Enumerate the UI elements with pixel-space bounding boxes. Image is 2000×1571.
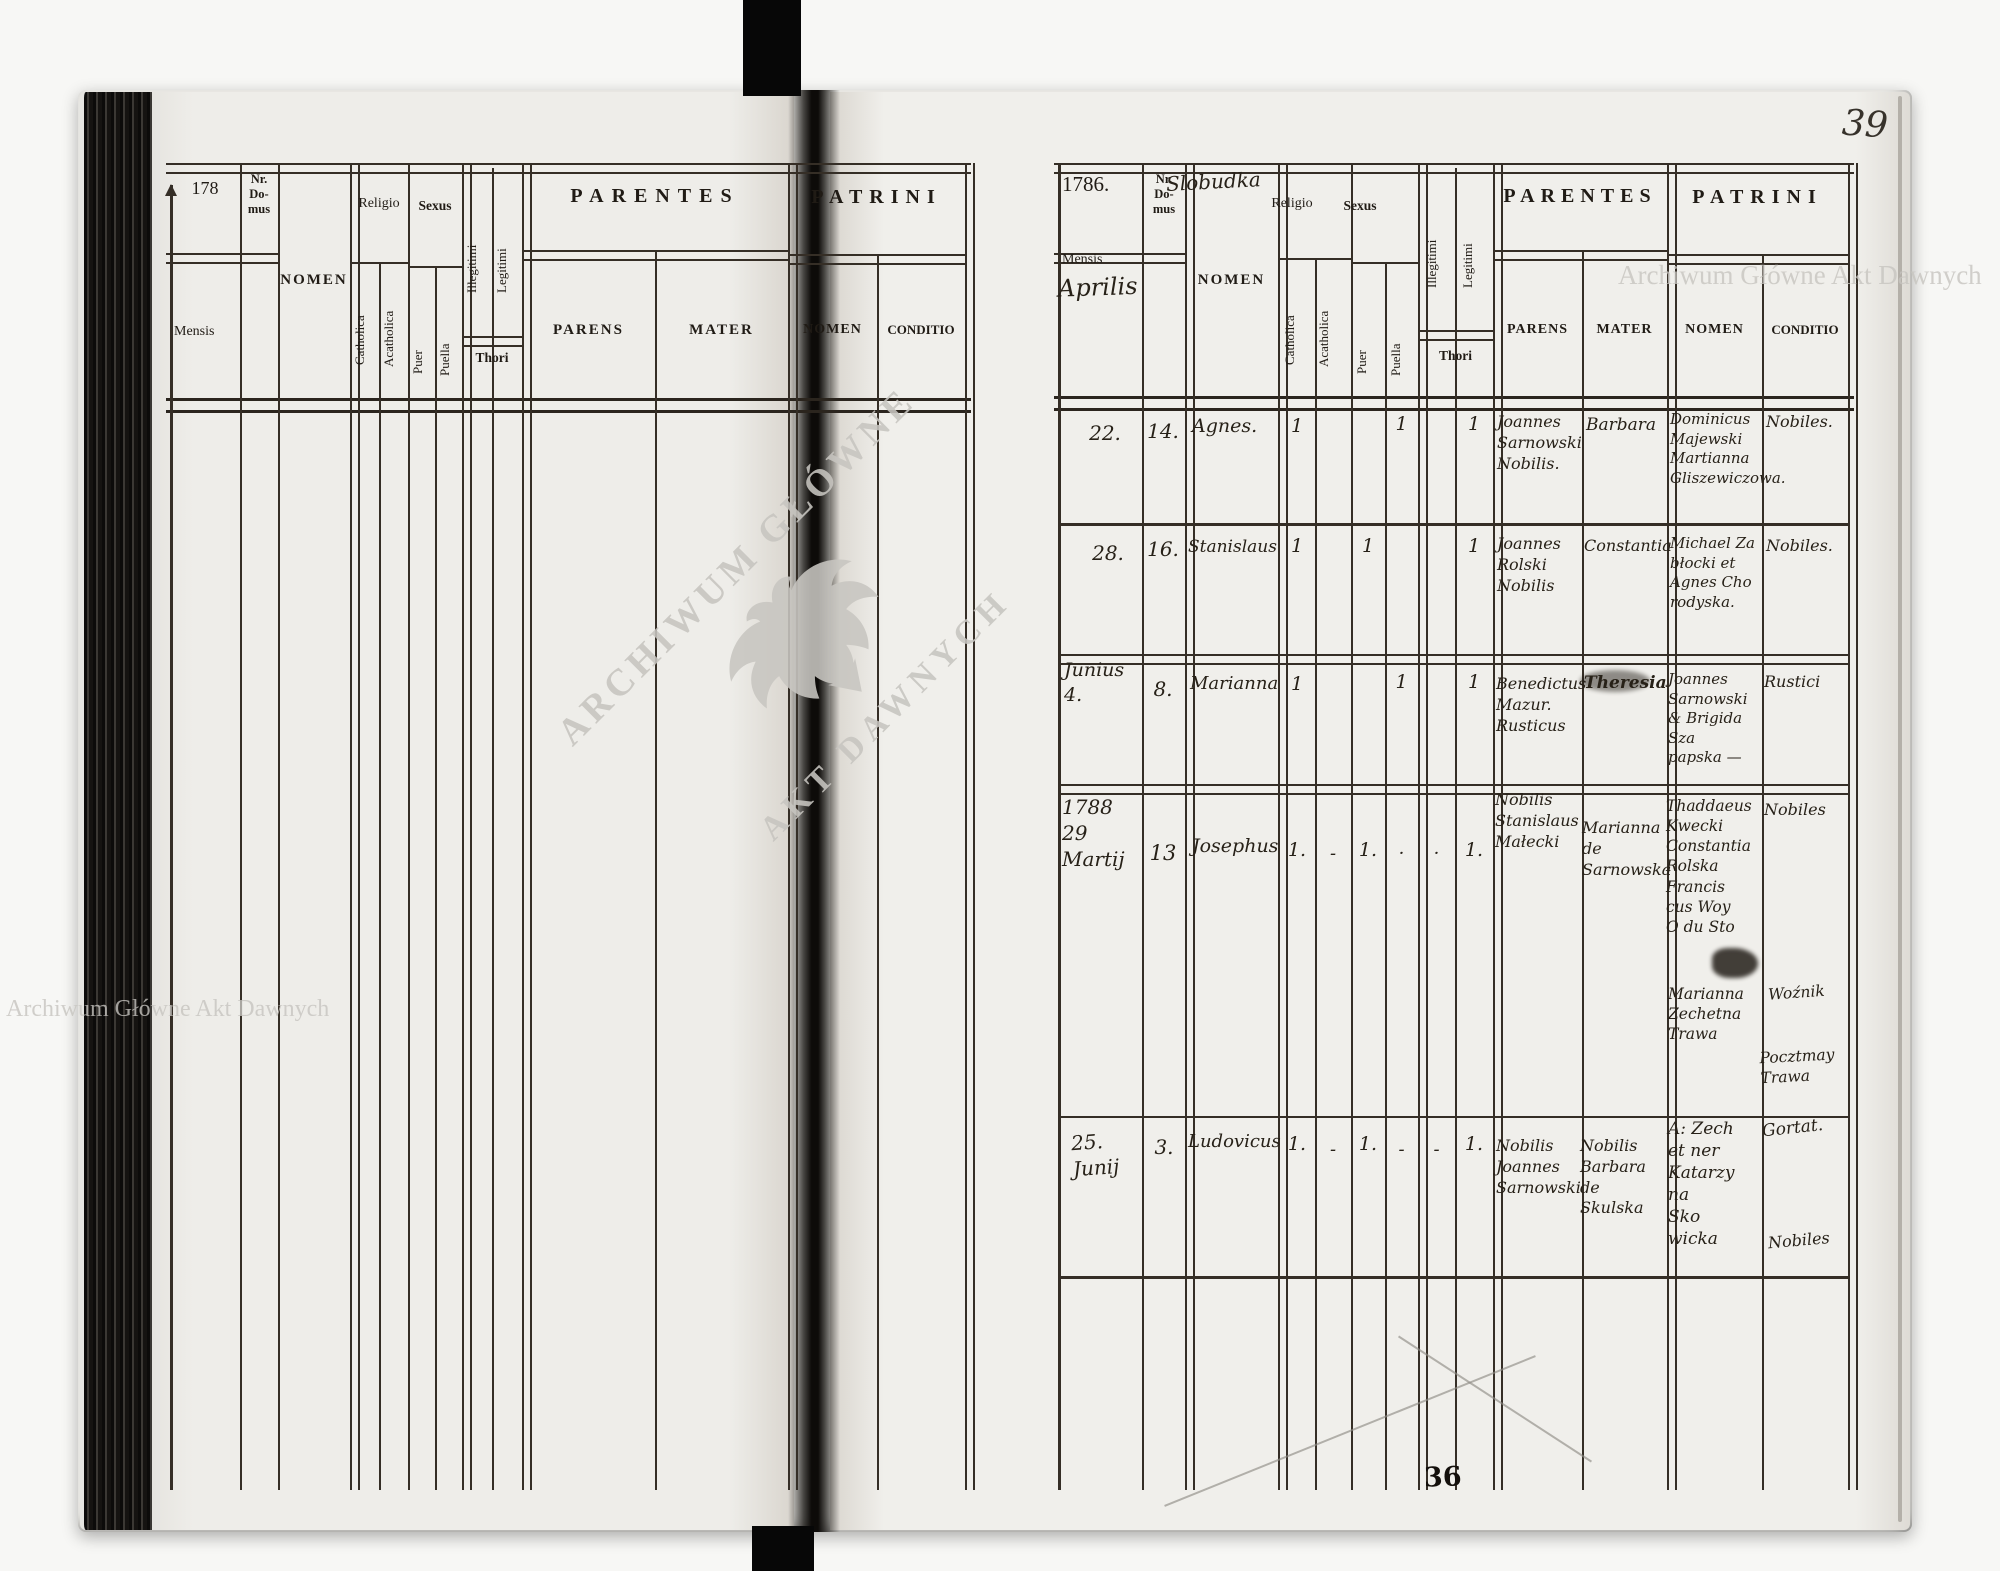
cell-catholica: 1. <box>1280 1132 1314 1157</box>
bottom-page-stamp: 36 <box>1423 1459 1462 1495</box>
col-puella: Puella <box>437 324 461 396</box>
cell-mater: Marianna de Sarnowska <box>1582 818 1666 880</box>
grid-line <box>965 163 975 1490</box>
col-acatholica: Acatholica <box>1316 280 1342 398</box>
cell-catholica: 1 <box>1280 414 1314 439</box>
cell-mensis: 25. Junij <box>1070 1126 1137 1182</box>
grid-line <box>1455 168 1457 1490</box>
cell-nr: 8. <box>1144 676 1182 702</box>
col-patrini-nomen: NOMEN <box>789 322 876 338</box>
cell-mater: Theresia <box>1584 672 1666 694</box>
cell-mater: Nobilis Barbara de Skulska <box>1580 1136 1666 1219</box>
grid-line <box>1054 396 1854 411</box>
cell-patrini-nomen: A: Zech et ner Katarzy na Sko wicka <box>1668 1118 1762 1251</box>
col-mensis: Mensis <box>174 324 234 340</box>
cell-catholica: 1 <box>1280 534 1314 559</box>
cell-mensis: 1788 29 Martij <box>1062 794 1136 872</box>
cell-acatholica: - <box>1317 842 1349 865</box>
cell-mensis: 28. <box>1078 540 1138 566</box>
col-conditio: CONDITIO <box>878 322 964 338</box>
cell-puer: 1 <box>1353 534 1383 559</box>
left-folio-printed: 178 <box>172 178 238 199</box>
cell-conditio: Nobiles. <box>1766 536 1846 557</box>
cell-puella: - <box>1387 1138 1416 1161</box>
grid-line <box>166 253 278 264</box>
col-acatholica: Acatholica <box>381 280 407 398</box>
cell-parens: Nobilis Joannes Sarnowski <box>1496 1136 1580 1198</box>
cell-puella: 1 <box>1387 412 1416 437</box>
cell-illegitimi: - <box>1420 1138 1453 1161</box>
grid-line <box>1385 262 1387 1490</box>
grid-line <box>492 168 494 1490</box>
col-nr-domus: Nr. Do- mus <box>241 172 277 217</box>
cell-nomen: Josephus <box>1192 834 1276 859</box>
cell-nomen: Agnes. <box>1192 414 1278 439</box>
month-annotation: Aprilis <box>1057 270 1153 304</box>
cell-patrini-nomen: Michael Za błocki et Agnes Cho rodyska. <box>1670 534 1762 612</box>
watermark-text-bottom-left: Archiwum Główne Akt Dawnych <box>6 996 329 1023</box>
cell-mensis: Junius 4. <box>1064 658 1134 707</box>
ink-blot <box>1712 948 1758 978</box>
col-illegitimi: Illegitimi <box>1424 200 1451 328</box>
cell-catholica: 1. <box>1280 838 1314 863</box>
cell-puella: · <box>1387 842 1416 865</box>
cell-acatholica: - <box>1317 1138 1349 1161</box>
cell-mater: Barbara <box>1586 414 1664 436</box>
col-puer: Puer <box>1354 330 1378 394</box>
cell-nomen: Ludovicus <box>1188 1130 1276 1153</box>
cell-legitimi: 1 <box>1457 412 1491 437</box>
cell-parens: Joannes Rolski Nobilis <box>1497 534 1581 596</box>
cell-patrini-nomen: Joannes Sarnowski & Brigida Sza papska — <box>1668 670 1762 768</box>
col-parens: PARENS <box>1494 322 1581 338</box>
col-illegitimi: Illegitimi <box>464 205 491 333</box>
right-year: 1786. <box>1062 172 1142 197</box>
col-thori: Thori <box>463 350 521 366</box>
grid-line <box>522 163 532 1490</box>
col-nomen: NOMEN <box>1186 272 1277 289</box>
grid-line <box>240 163 242 1490</box>
folio-number-39: 39 <box>1840 100 1889 150</box>
binding-strap-top <box>743 0 801 96</box>
col-conditio: CONDITIO <box>1763 322 1847 338</box>
col-catholica: Catholica <box>1282 284 1308 396</box>
grid-line <box>1142 163 1144 1490</box>
col-patrini-nomen: NOMEN <box>1668 322 1761 338</box>
col-patrini: PATRINI <box>789 186 964 209</box>
grid-line <box>1848 163 1858 1490</box>
col-legitimi: Legitimi <box>494 210 521 332</box>
cell-legitimi: 1 <box>1457 670 1491 695</box>
cell-parens: Benedictus Mazur. Rusticus <box>1496 674 1580 736</box>
cell-conditio: Nobiles <box>1764 800 1846 821</box>
col-legitimi: Legitimi <box>1460 205 1487 327</box>
grid-line <box>278 163 280 1490</box>
col-thori: Thori <box>1420 348 1491 364</box>
col-puella: Puella <box>1388 324 1412 396</box>
cell-conditio-3: Pocztmay Trawa <box>1759 1044 1849 1089</box>
grid-line <box>788 163 798 1490</box>
col-parens: PARENS <box>523 322 654 339</box>
col-religio: Religio <box>1252 196 1332 212</box>
col-parentes: PARENTES <box>523 185 787 208</box>
col-mater: MATER <box>1583 322 1666 338</box>
cell-mensis: 22. <box>1075 420 1135 446</box>
cell-legitimi: 1. <box>1457 1132 1491 1157</box>
cell-legitimi: 1 <box>1457 534 1491 559</box>
grid-line <box>166 163 971 174</box>
col-mensis: Mensis <box>1062 252 1122 268</box>
cell-nomen: Stanislaus <box>1188 536 1278 558</box>
book-left-edge <box>80 92 152 1530</box>
row-rule <box>1058 654 1848 665</box>
cell-illegitimi: · <box>1420 842 1453 865</box>
cell-mater: Constantia <box>1584 536 1666 557</box>
cell-nr: 16. <box>1144 536 1182 562</box>
cell-catholica: 1 <box>1280 672 1314 697</box>
grid-line <box>170 185 173 1490</box>
cell-patrini-nomen: Dominicus Majewski Martianna Gliszewiczo… <box>1670 410 1762 488</box>
right-page-edge <box>1898 96 1902 1522</box>
col-sexus: Sexus <box>409 198 461 214</box>
grid-line <box>1315 258 1317 1490</box>
cell-conditio: Rustici <box>1764 672 1844 693</box>
cell-nr: 13 <box>1144 840 1182 867</box>
col-catholica: Catholica <box>352 284 378 396</box>
grid-line <box>379 262 381 1490</box>
cell-parens: Nobilis Stanislaus Małecki <box>1495 790 1581 852</box>
grid-line <box>1058 163 1061 1490</box>
col-puer: Puer <box>410 330 434 394</box>
cell-puer: 1. <box>1353 838 1383 863</box>
row-rule <box>1058 784 1848 795</box>
grid-line <box>655 250 657 1490</box>
col-patrini: PATRINI <box>1668 186 1847 209</box>
col-religio: Religio <box>351 196 407 212</box>
cell-nr: 14. <box>1144 418 1182 444</box>
cell-puella: 1 <box>1387 670 1416 695</box>
row-rule <box>1058 1276 1848 1279</box>
cell-legitimi: 1. <box>1457 838 1491 863</box>
col-parentes: PARENTES <box>1494 185 1666 208</box>
cell-patrini-nomen: Thaddaeus Kwecki Constantia Rolska Franc… <box>1666 796 1762 937</box>
cell-parens: Joannes Sarnowski Nobilis. <box>1497 412 1581 474</box>
row-rule <box>1058 523 1848 526</box>
col-mater: MATER <box>656 322 787 339</box>
grid-line <box>877 254 879 1490</box>
binding-strap-bottom <box>752 1526 814 1571</box>
grid-line <box>435 266 437 1490</box>
cell-conditio: Nobiles. <box>1766 412 1846 433</box>
watermark-text-top-right: Archiwum Główne Akt Dawnych <box>1618 260 1982 291</box>
cell-patrini-nomen-2: Marianna Zechetna Trawa <box>1668 984 1762 1044</box>
cell-nr: 3. <box>1146 1134 1182 1160</box>
cell-puer: 1. <box>1353 1132 1383 1157</box>
col-sexus: Sexus <box>1322 198 1398 214</box>
grid-line <box>166 398 971 413</box>
grid-line <box>1762 254 1764 1490</box>
grid-line <box>1185 163 1195 1490</box>
cell-nomen: Marianna <box>1190 672 1276 695</box>
grid-line <box>1351 163 1353 1490</box>
col-nomen: NOMEN <box>279 272 349 289</box>
